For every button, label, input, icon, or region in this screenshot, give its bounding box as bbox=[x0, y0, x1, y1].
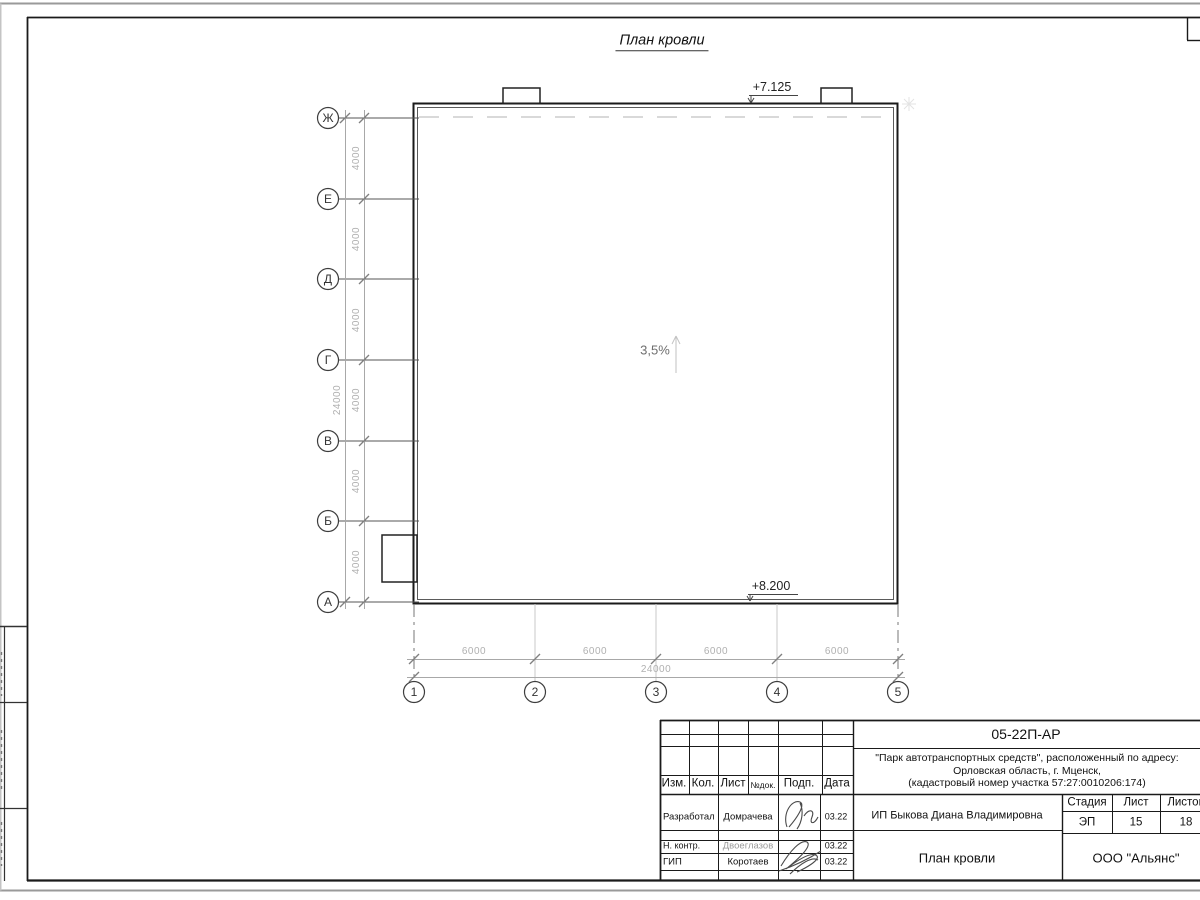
elevation-bottom-label: +8.200 bbox=[752, 580, 791, 593]
row-spacing-dim: 4000 bbox=[352, 469, 362, 493]
header-podp: Подп. bbox=[784, 778, 815, 790]
col-axis-label: 5 bbox=[895, 686, 902, 698]
roof-protrusion bbox=[382, 535, 417, 582]
signature-2 bbox=[779, 842, 821, 874]
signer-date: 03.22 bbox=[825, 857, 848, 866]
header-list: Лист bbox=[721, 778, 746, 790]
col-spacing-dim: 6000 bbox=[704, 647, 728, 657]
header-data: Дата bbox=[824, 778, 849, 790]
sheet-label: Лист bbox=[1124, 797, 1149, 809]
project-line-2: Орловская область, г. Мценск, bbox=[953, 765, 1101, 776]
row-spacing-dim: 4000 bbox=[352, 227, 362, 251]
signer-role: Разработал bbox=[663, 812, 715, 822]
row-axis-label: Б bbox=[324, 515, 332, 527]
roof-hatch-2 bbox=[821, 88, 852, 104]
col-spacing-dim: 6000 bbox=[462, 647, 486, 657]
row-spacing-dim: 4000 bbox=[352, 146, 362, 170]
axis-circles bbox=[318, 108, 909, 703]
signer-role: Н. контр. bbox=[663, 842, 700, 851]
row-axis-label: Д bbox=[324, 273, 332, 285]
elevation-mark-bottom bbox=[747, 595, 798, 602]
col-axis-label: 4 bbox=[774, 686, 781, 698]
signer-role: ГИП bbox=[663, 857, 682, 867]
elevation-mark-top bbox=[748, 96, 798, 104]
sheets-label: Листов bbox=[1167, 797, 1200, 809]
drawing-view-title: План кровли bbox=[615, 33, 708, 51]
slope-arrow bbox=[672, 336, 680, 373]
project-line-1: "Парк автотранспортных средств", располо… bbox=[875, 753, 1178, 764]
faint-corner-mark bbox=[902, 97, 916, 111]
sheet-value: 15 bbox=[1130, 817, 1143, 829]
header-izm: Изм. bbox=[662, 778, 687, 790]
col-total-dim: 24000 bbox=[641, 665, 671, 675]
row-axis-label: Е bbox=[324, 193, 332, 205]
col-spacing-dim: 6000 bbox=[825, 647, 849, 657]
stage-value: ЭП bbox=[1079, 817, 1096, 829]
row-spacing-dim: 4000 bbox=[352, 550, 362, 574]
slope-label: 3,5% bbox=[640, 344, 670, 357]
col-axis-label: 2 bbox=[532, 686, 539, 698]
signer-date: 03.22 bbox=[825, 841, 848, 850]
sheets-value: 18 bbox=[1180, 817, 1193, 829]
row-axis-label: Г bbox=[325, 354, 332, 366]
row-axis-label: Ж bbox=[322, 112, 333, 124]
signer-name: Домрачева bbox=[723, 812, 772, 822]
col-spacing-dim: 6000 bbox=[583, 647, 607, 657]
signer-name: Двоеглазов bbox=[723, 841, 774, 851]
col-axis-label: 3 bbox=[653, 686, 660, 698]
company-name: ООО "Альянс" bbox=[1093, 852, 1180, 865]
elevation-top-label: +7.125 bbox=[753, 81, 792, 94]
row-total-dim: 24000 bbox=[333, 385, 343, 415]
left-margin-block bbox=[0, 626, 27, 881]
client-name: ИП Быкова Диана Владимировна bbox=[871, 811, 1042, 822]
row-axis-label: А bbox=[324, 596, 332, 608]
signature-1 bbox=[786, 802, 818, 829]
row-axis-lines bbox=[339, 118, 419, 602]
row-spacing-dim: 4000 bbox=[352, 388, 362, 412]
doc-code: 05-22П-АР bbox=[991, 727, 1060, 741]
header-ndok: №док. bbox=[751, 780, 776, 789]
project-line-3: (кадастровый номер участка 57:27:0010206… bbox=[908, 778, 1145, 789]
roof-hatches bbox=[503, 88, 852, 104]
col-axis-label: 1 bbox=[411, 686, 418, 698]
row-spacing-dim: 4000 bbox=[352, 308, 362, 332]
titleblock-drawing-title: План кровли bbox=[919, 852, 996, 865]
signature-scribbles bbox=[779, 802, 821, 874]
signer-name: Коротаев bbox=[727, 857, 768, 867]
stage-label: Стадия bbox=[1067, 797, 1106, 809]
signer-date: 03.22 bbox=[825, 813, 848, 822]
header-kol: Кол. bbox=[692, 778, 715, 790]
drawing-sheet: План кровли +7.125 +8.200 3,5% Ж Е Д Г В… bbox=[0, 0, 1200, 900]
row-axis-label: В bbox=[324, 435, 332, 447]
roof-hatch-1 bbox=[503, 88, 540, 104]
left-dimension-lines bbox=[346, 110, 365, 609]
